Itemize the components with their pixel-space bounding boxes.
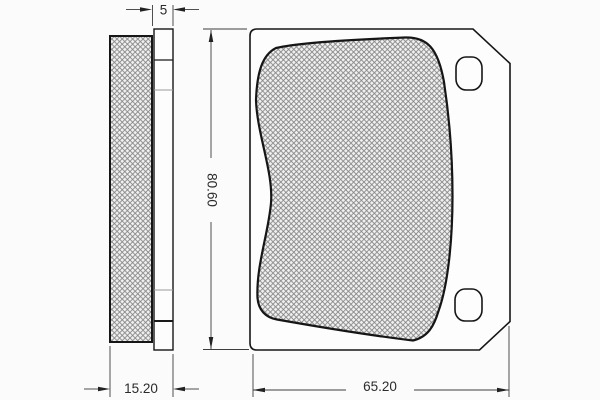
mounting-hole-bottom xyxy=(455,289,482,321)
arrowhead-icon xyxy=(497,388,509,393)
dimension-label-total-thickness: 15.20 xyxy=(124,381,158,396)
side-view-friction-material xyxy=(110,36,152,342)
mounting-hole-top xyxy=(456,57,482,90)
dimension-height: 80.60 xyxy=(203,29,249,350)
dimension-label-width: 65.20 xyxy=(363,379,397,394)
front-view-friction-material xyxy=(256,37,453,340)
side-view xyxy=(110,29,173,350)
dimension-label-plate-thickness: 5 xyxy=(160,3,168,18)
arrowhead-icon xyxy=(140,7,152,11)
dimension-plate-thickness: 5 xyxy=(126,3,199,27)
dimension-total-thickness: 15.20 xyxy=(84,346,199,397)
front-view xyxy=(250,29,510,350)
drawing-page: 5 15.20 80.60 xyxy=(0,0,600,400)
arrowhead-icon xyxy=(98,387,110,391)
arrowhead-icon xyxy=(209,337,214,349)
arrowhead-icon xyxy=(209,30,214,42)
dimension-label-height: 80.60 xyxy=(205,173,220,207)
arrowhead-icon xyxy=(173,7,185,11)
arrowhead-icon xyxy=(253,388,265,393)
arrowhead-icon xyxy=(173,387,185,391)
side-view-backing-plate xyxy=(154,29,173,350)
technical-drawing-canvas: 5 15.20 80.60 xyxy=(0,0,600,400)
